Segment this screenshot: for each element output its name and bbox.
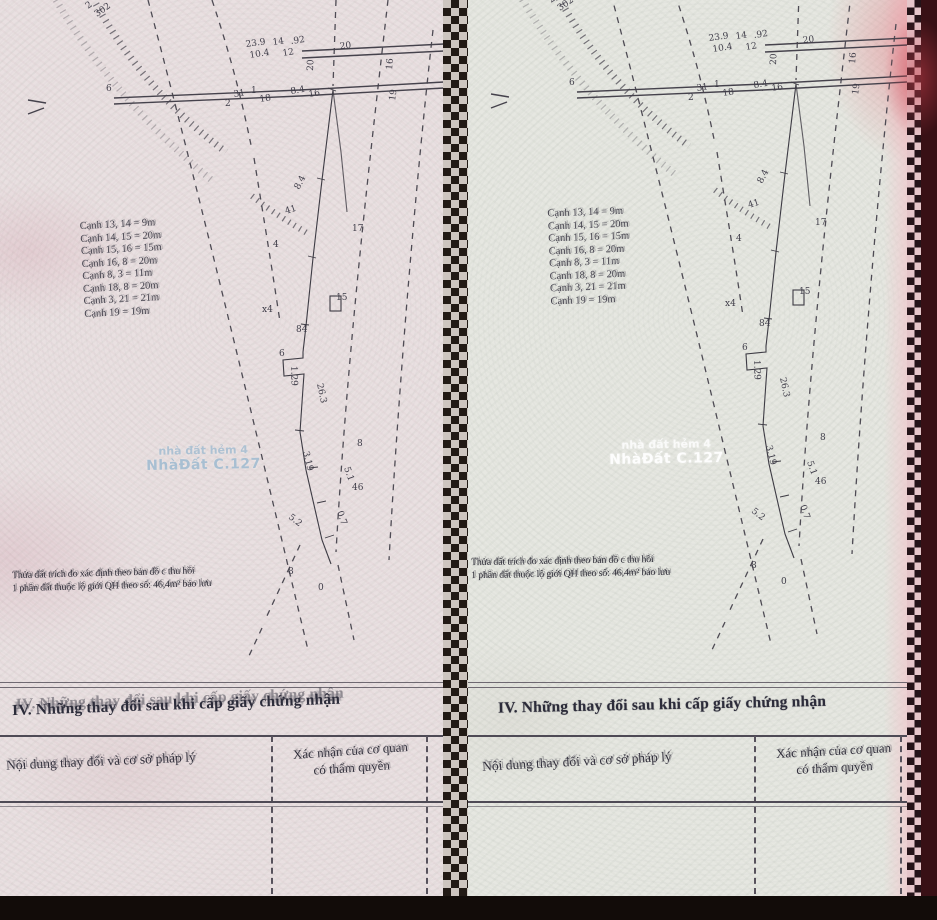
dimension-label: 18 [722, 87, 735, 99]
perforated-edge-right [907, 0, 937, 920]
section-divider-line [0, 682, 446, 683]
hatched-boundary-ticks [519, 0, 770, 227]
dimension-label: 16 [848, 52, 859, 65]
hatched-boundary-ticks [56, 0, 307, 233]
dimension-label: 8 [751, 561, 757, 571]
dimension-label: 17 [815, 218, 827, 228]
watermark: nhà đất hẻm 4 NhàĐất C.127 [609, 437, 724, 468]
dimension-label: 20 [769, 53, 779, 65]
dimension-label: 31 [696, 82, 709, 94]
dimension-label: 8 [357, 439, 363, 449]
section-iv-title: IV. Những thay đổi sau khi cấp giấy chứn… [12, 690, 362, 720]
dimension-label: 6 [742, 343, 748, 353]
dimension-label: 1.29 [751, 360, 762, 381]
cadastral-sketch-drawing: 2302623.914.922010.412161920311188.41621… [0, 0, 446, 660]
watermark: nhà đất hẻm 4 NhàĐất C.127 [146, 443, 261, 474]
dimension-label: x4 [725, 299, 736, 309]
dimension-label: 6 [569, 78, 575, 88]
dimension-label: 41 [284, 204, 298, 217]
dimension-label: 17 [352, 224, 364, 234]
dimension-label: 8.4 [756, 168, 772, 186]
dimension-label: x4 [262, 305, 273, 315]
table-column-divider-dashed [754, 736, 756, 894]
dimension-label: 2 [84, 0, 94, 11]
dimension-label: 0 [318, 583, 324, 593]
dimension-label: 3.19 [300, 450, 315, 472]
photo-collage: 2302623.914.922010.412161920311188.41621… [0, 0, 937, 920]
watermark-line1: nhà đất hẻm 4 [609, 437, 724, 452]
edge-measurement-list: Cạnh 13, 14 = 9mCạnh 14, 15 = 20mCạnh 15… [79, 217, 165, 321]
dimension-label: 4 [736, 234, 742, 244]
dimension-label: 19 [388, 88, 400, 101]
certificate-photo-right: 2302623.914.922010.412161920311188.41621… [468, 0, 915, 898]
dimension-label: 6 [279, 349, 285, 359]
dimension-label: 2 [688, 93, 694, 103]
dimension-label: 3.19 [763, 444, 778, 466]
dimension-label: 41 [747, 198, 761, 211]
table-column-divider-dashed [271, 736, 273, 894]
table-header-authority-confirmation: Xác nhận của cơ quan có thẩm quyền [763, 738, 905, 779]
parcel-outline [283, 88, 347, 564]
perforated-edge-middle [443, 0, 468, 920]
dimension-label: 18 [259, 93, 272, 105]
dimension-label: 5.1 [341, 466, 355, 483]
dimension-label: 302 [556, 0, 576, 13]
dimension-label: 10.4 [249, 48, 271, 61]
dimension-label: 5.2 [286, 512, 303, 529]
dimension-label: 4 [273, 240, 279, 250]
section-divider-line [0, 687, 446, 688]
dimension-label: 84 [759, 319, 771, 329]
parcel-outline [746, 82, 810, 558]
dimension-label: 46 [352, 483, 364, 493]
table-right-border-dashed [426, 736, 428, 894]
vertex-tick-marks [758, 82, 799, 532]
watermark-line2: NhàĐất C.127 [146, 456, 261, 474]
table-header-bottom-border-ghost [468, 806, 915, 807]
dimension-label: 46 [815, 477, 827, 487]
plot-note: Thửa đất trích đo xác định theo bản đồ c… [471, 552, 721, 582]
dimension-label: 5.2 [749, 506, 766, 523]
table-header-authority-confirmation: Xác nhận của cơ quan có thẩm quyền [280, 737, 422, 781]
dimension-label: 1.29 [288, 366, 299, 387]
table-top-border [0, 735, 446, 737]
edge-measurement-list: Cạnh 13, 14 = 9mCạnh 14, 15 = 20mCạnh 15… [547, 206, 631, 309]
dimension-label: .92 [753, 29, 769, 41]
dimension-label: 31 [233, 88, 246, 100]
dimension-label: 20 [802, 35, 815, 46]
dimension-label: 15 [799, 287, 811, 297]
dimension-label: 26.3 [777, 377, 791, 399]
dimension-label: 10.4 [712, 42, 734, 55]
watermark-line1: nhà đất hẻm 4 [146, 443, 261, 458]
dimension-label: 5.1 [804, 460, 818, 477]
dimension-label: 6 [106, 84, 112, 94]
dimension-label: 8.4 [293, 174, 309, 192]
table-header-bottom-border-ghost [0, 806, 446, 807]
watermark-line2: NhàĐất C.127 [609, 450, 724, 468]
dimension-label: 8 [820, 433, 826, 443]
dimension-label: 84 [296, 325, 308, 335]
dimension-label: 20 [306, 59, 316, 71]
dimension-label: 20 [339, 41, 352, 52]
dimension-label: 0 [781, 577, 787, 587]
plot-sketch-area: 2302623.914.922010.412161920311188.41621… [0, 0, 446, 660]
dimension-label: 14 [735, 30, 748, 42]
dimension-label: 0.7 [797, 504, 811, 521]
dimension-label: 12 [745, 41, 758, 53]
dimension-label: 12 [282, 47, 295, 59]
section-iv-title: IV. Những thay đổi sau khi cấp giấy chứn… [498, 692, 848, 717]
table-header-change-content: Nội dung thay đổi và cơ sở pháp lý [482, 745, 740, 774]
dark-background-bottom [0, 896, 937, 920]
dimension-label: 16 [385, 58, 396, 71]
table-top-border [468, 735, 915, 737]
dimension-label: 15 [336, 293, 348, 303]
table-header-bottom-border [468, 801, 915, 803]
dimension-label: 1 [714, 80, 720, 90]
dimension-label: 16 [771, 82, 784, 94]
dimension-label: 26.3 [314, 383, 328, 405]
dimension-label: 2 [225, 99, 231, 109]
section-divider-line [468, 682, 915, 683]
dimension-label: .92 [290, 35, 306, 47]
dimension-label: 14 [272, 36, 285, 48]
dimension-label: 0.7 [334, 510, 348, 527]
dimension-label: 1 [251, 86, 257, 96]
section-divider-line [468, 687, 915, 688]
dimension-label: 8 [288, 567, 294, 577]
certificate-photo-left: 2302623.914.922010.412161920311188.41621… [0, 0, 446, 898]
table-header-change-content: Nội dung thay đổi và cơ sở pháp lý [6, 746, 264, 773]
table-header-bottom-border [0, 801, 446, 803]
plot-sketch-area: 2302623.914.922010.412161920311188.41621… [468, 0, 909, 654]
dimension-label: 19 [851, 82, 863, 95]
dimension-label: 16 [308, 88, 321, 100]
vertex-tick-marks [295, 88, 336, 538]
